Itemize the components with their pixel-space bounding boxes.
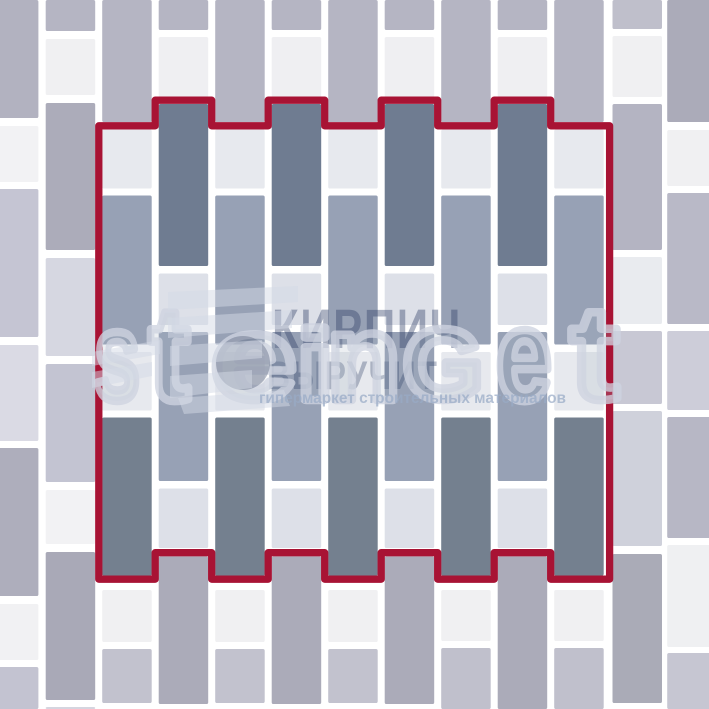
svg-text:t: t — [570, 278, 619, 427]
svg-text:гипермаркет строительных матер: гипермаркет строительных материалов — [259, 390, 566, 407]
